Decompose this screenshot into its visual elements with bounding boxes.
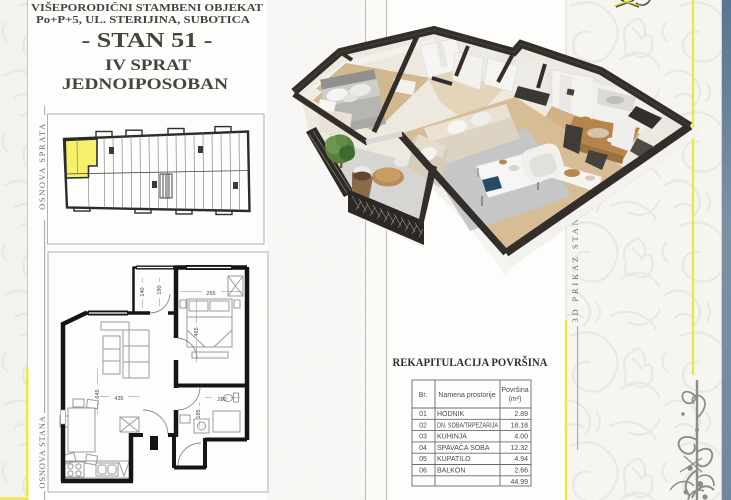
svg-text:(m²): (m²) (509, 396, 522, 403)
svg-text:REKAPITULACIJA POVRŠINA: REKAPITULACIJA POVRŠINA (393, 355, 549, 369)
svg-text:BALKON: BALKON (437, 468, 465, 475)
svg-text:185: 185 (196, 409, 202, 418)
svg-text:12.32: 12.32 (510, 445, 528, 452)
svg-text:280: 280 (217, 397, 226, 403)
svg-text:435: 435 (114, 396, 123, 402)
svg-text:OSNOVA SPRATA: OSNOVA SPRATA (37, 122, 47, 210)
svg-text:- STAN 51 -: - STAN 51 - (82, 28, 213, 52)
svg-text:Po+P+5, UL. STERIJINA, SUBOTIC: Po+P+5, UL. STERIJINA, SUBOTICA (36, 15, 251, 26)
svg-text:KUPATILO: KUPATILO (437, 456, 471, 463)
svg-text:3D PRIKAZ STANA: 3D PRIKAZ STANA (570, 208, 580, 323)
svg-text:IV SPRAT: IV SPRAT (105, 57, 192, 74)
svg-text:2.89: 2.89 (514, 411, 528, 418)
svg-text:02: 02 (419, 422, 427, 429)
svg-text:SPAVAČA SOBA: SPAVAČA SOBA (437, 443, 490, 452)
svg-text:Površina: Površina (501, 387, 528, 394)
svg-text:18.18: 18.18 (510, 422, 528, 429)
svg-text:KUHINJA: KUHINJA (437, 434, 467, 441)
svg-text:04: 04 (419, 445, 427, 452)
svg-text:05: 05 (419, 456, 427, 463)
svg-text:Namena prostorije: Namena prostorije (438, 392, 495, 399)
svg-text:06: 06 (419, 468, 427, 475)
svg-text:4.00: 4.00 (514, 434, 528, 441)
svg-text:465: 465 (194, 327, 200, 336)
svg-text:190: 190 (157, 285, 163, 294)
svg-text:01: 01 (419, 411, 427, 418)
svg-text:OSNOVA STANA: OSNOVA STANA (37, 415, 47, 488)
svg-text:2.66: 2.66 (514, 468, 528, 475)
svg-text:140: 140 (140, 287, 146, 296)
svg-text:DN. SOBA/TRPEZARIJA: DN. SOBA/TRPEZARIJA (437, 422, 498, 429)
svg-text:HODNIK: HODNIK (437, 411, 465, 418)
svg-text:4.94: 4.94 (514, 456, 528, 463)
svg-text:645: 645 (95, 389, 101, 398)
svg-text:44.99: 44.99 (510, 479, 528, 486)
svg-text:JEDNOIPOSOBAN: JEDNOIPOSOBAN (62, 76, 229, 93)
svg-text:265: 265 (206, 291, 215, 297)
svg-text:VIŠEPORODIČNI STAMBENI OBJEKAT: VIŠEPORODIČNI STAMBENI OBJEKAT (31, 1, 263, 14)
svg-text:Br.: Br. (419, 392, 428, 399)
svg-text:03: 03 (419, 434, 427, 441)
